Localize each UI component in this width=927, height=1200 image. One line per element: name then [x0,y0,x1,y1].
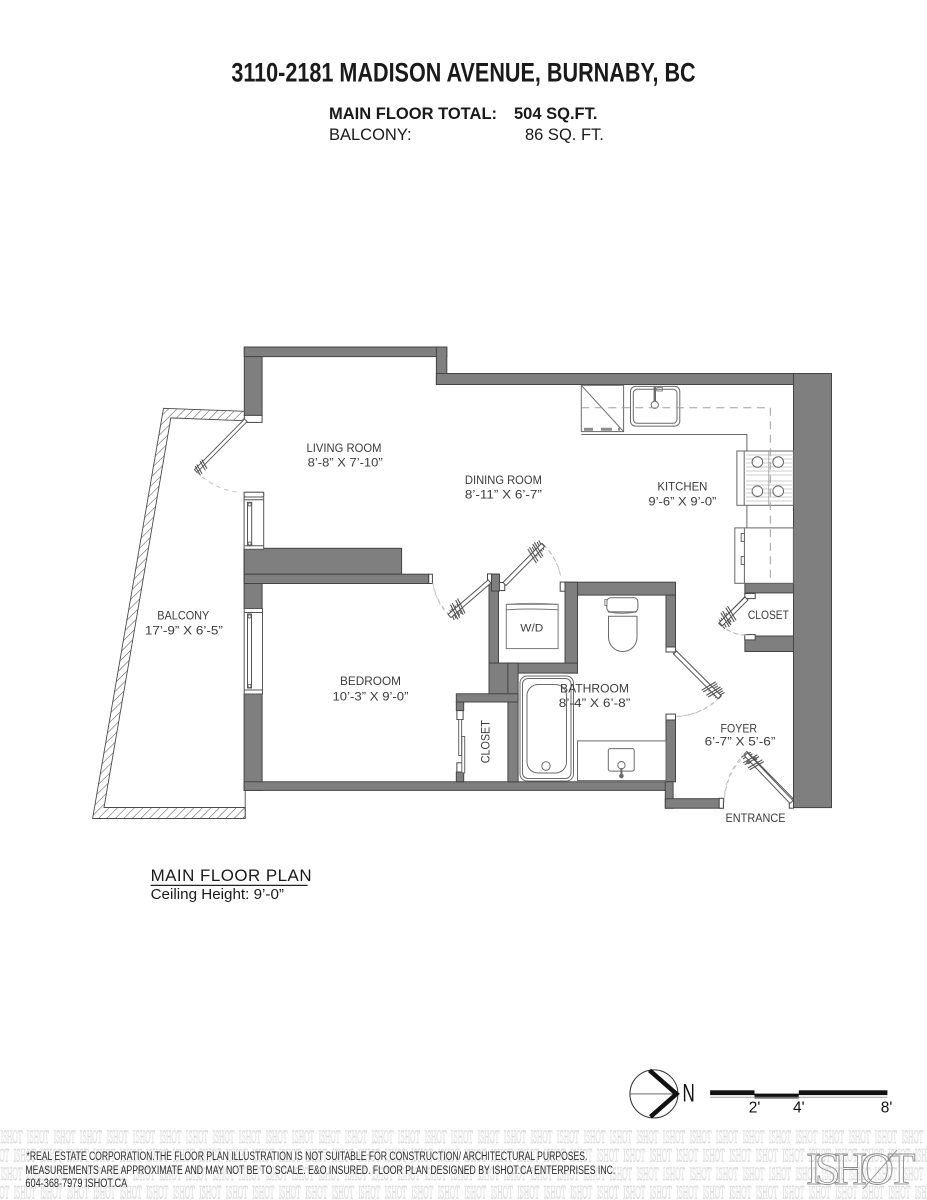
svg-text:W/D: W/D [520,623,543,635]
svg-text:Ceiling Height: 9’-0”: Ceiling Height: 9’-0” [151,886,284,903]
svg-text:6’-7” X 5’-6”: 6’-7” X 5’-6” [705,736,776,749]
svg-text:2': 2' [749,1100,761,1117]
svg-text:8’-8” X 7’-10”: 8’-8” X 7’-10” [308,457,383,470]
svg-text:DINING ROOM: DINING ROOM [465,474,542,487]
svg-text:N: N [683,1079,695,1107]
svg-text:LIVING ROOM: LIVING ROOM [307,442,382,455]
svg-text:86 SQ. FT.: 86 SQ. FT. [525,126,604,144]
svg-text:604-368-7979 ISHOT.CA: 604-368-7979 ISHOT.CA [25,1177,127,1191]
svg-text:ISHOT: ISHOT [806,1143,915,1194]
svg-text:4': 4' [793,1100,805,1117]
svg-text:CLOSET: CLOSET [748,609,789,622]
svg-text:10’-3” X 9’-0”: 10’-3” X 9’-0” [333,691,409,704]
svg-text:MAIN FLOOR TOTAL:: MAIN FLOOR TOTAL: [329,105,497,123]
svg-text:BALCONY: BALCONY [157,610,209,623]
svg-text:504 SQ.FT.: 504 SQ.FT. [514,105,597,123]
svg-text:3110-2181 MADISON AVENUE, BURN: 3110-2181 MADISON AVENUE, BURNABY, BC [231,58,695,88]
svg-text:8’-11” X 6’-7”: 8’-11” X 6’-7” [465,489,542,502]
svg-text:17’-9” X 6’-5”: 17’-9” X 6’-5” [145,625,223,638]
svg-text:*REAL ESTATE CORPORATION.THE F: *REAL ESTATE CORPORATION.THE FLOOR PLAN … [27,1150,588,1164]
svg-text:MAIN FLOOR PLAN: MAIN FLOOR PLAN [151,866,312,885]
svg-text:8': 8' [881,1100,893,1117]
svg-text:MEASUREMENTS ARE APPROXIMATE A: MEASUREMENTS ARE APPROXIMATE AND MAY NOT… [25,1164,615,1178]
svg-text:BALCONY:: BALCONY: [329,126,412,144]
svg-text:FOYER: FOYER [721,723,758,736]
svg-text:8’-4” X 6’-8”: 8’-4” X 6’-8” [559,697,631,710]
svg-text:9’-6” X 9’-0”: 9’-6” X 9’-0” [648,496,716,509]
svg-text:ENTRANCE: ENTRANCE [726,812,786,825]
svg-text:BATHROOM: BATHROOM [560,683,629,696]
svg-text:KITCHEN: KITCHEN [657,481,707,494]
svg-text:BEDROOM: BEDROOM [340,675,401,688]
svg-text:CLOSET: CLOSET [479,720,492,763]
